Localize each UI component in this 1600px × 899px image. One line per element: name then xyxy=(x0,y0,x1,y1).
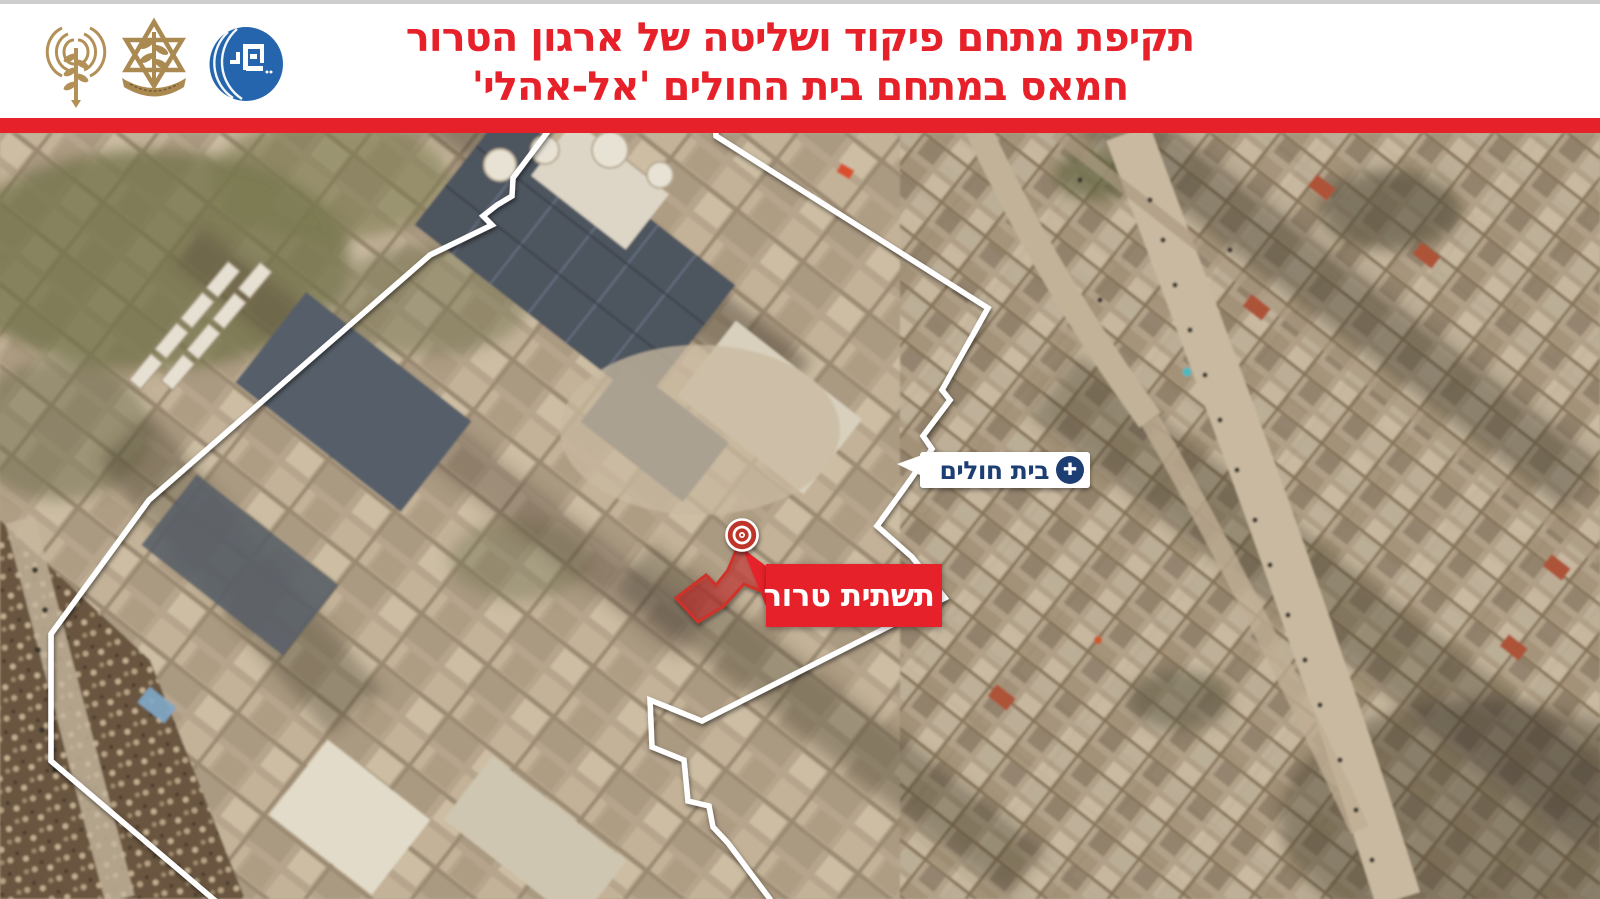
target-icon xyxy=(727,520,758,551)
page-title: תקיפת מתחם פיקוד ושליטה של ארגון הטרור ח… xyxy=(0,4,1600,110)
title-line-1: תקיפת מתחם פיקוד ושליטה של ארגון הטרור xyxy=(0,14,1600,62)
medical-cross-icon: ✚ xyxy=(1056,456,1084,484)
red-divider xyxy=(0,118,1600,133)
hospital-label: ✚ בית חולים xyxy=(920,452,1090,488)
infographic-page: תקיפת מתחם פיקוד ושליטה של ארגון הטרור ח… xyxy=(0,0,1600,899)
hospital-label-text: בית חולים xyxy=(939,456,1049,485)
terror-label-text: תשתית טרור xyxy=(764,578,945,614)
satellite-background xyxy=(0,133,1600,899)
title-line-2: חמאס במתחם בית החולים 'אל-אהלי' xyxy=(0,64,1600,110)
satellite-map: ✚ בית חולים תשתית טרור xyxy=(0,133,1600,899)
terror-infrastructure-label: תשתית טרור xyxy=(766,564,942,627)
satellite-map-graphic xyxy=(0,133,1600,899)
header-bar: תקיפת מתחם פיקוד ושליטה של ארגון הטרור ח… xyxy=(0,0,1600,118)
